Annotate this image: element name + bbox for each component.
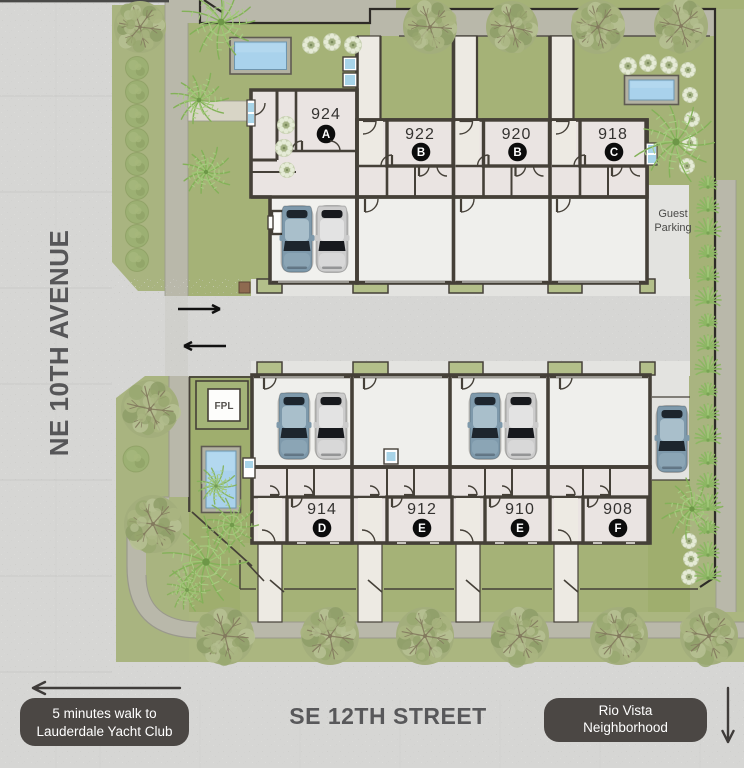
svg-text:Parking: Parking [654,222,691,234]
svg-text:B: B [417,147,425,159]
svg-text:5 minutes walk to: 5 minutes walk to [52,706,156,721]
svg-text:Lauderdale Yacht Club: Lauderdale Yacht Club [36,724,172,739]
svg-text:NE 10TH AVENUE: NE 10TH AVENUE [44,230,74,457]
svg-text:Guest: Guest [658,208,687,220]
svg-text:A: A [322,129,330,141]
svg-text:918: 918 [598,126,628,143]
svg-text:B: B [513,147,521,159]
svg-text:924: 924 [311,106,341,123]
svg-text:SE 12TH STREET: SE 12TH STREET [289,703,486,729]
svg-text:C: C [610,147,618,159]
svg-text:Rio Vista: Rio Vista [599,703,653,718]
svg-text:908: 908 [603,501,633,518]
svg-text:F: F [614,523,621,535]
svg-text:D: D [318,523,326,535]
svg-text:E: E [418,523,426,535]
svg-text:910: 910 [505,501,535,518]
svg-text:920: 920 [502,126,532,143]
svg-text:914: 914 [307,501,337,518]
svg-text:912: 912 [407,501,437,518]
svg-text:FPL: FPL [215,401,234,412]
svg-text:Neighborhood: Neighborhood [583,720,668,735]
svg-text:E: E [516,523,524,535]
svg-text:922: 922 [405,126,435,143]
